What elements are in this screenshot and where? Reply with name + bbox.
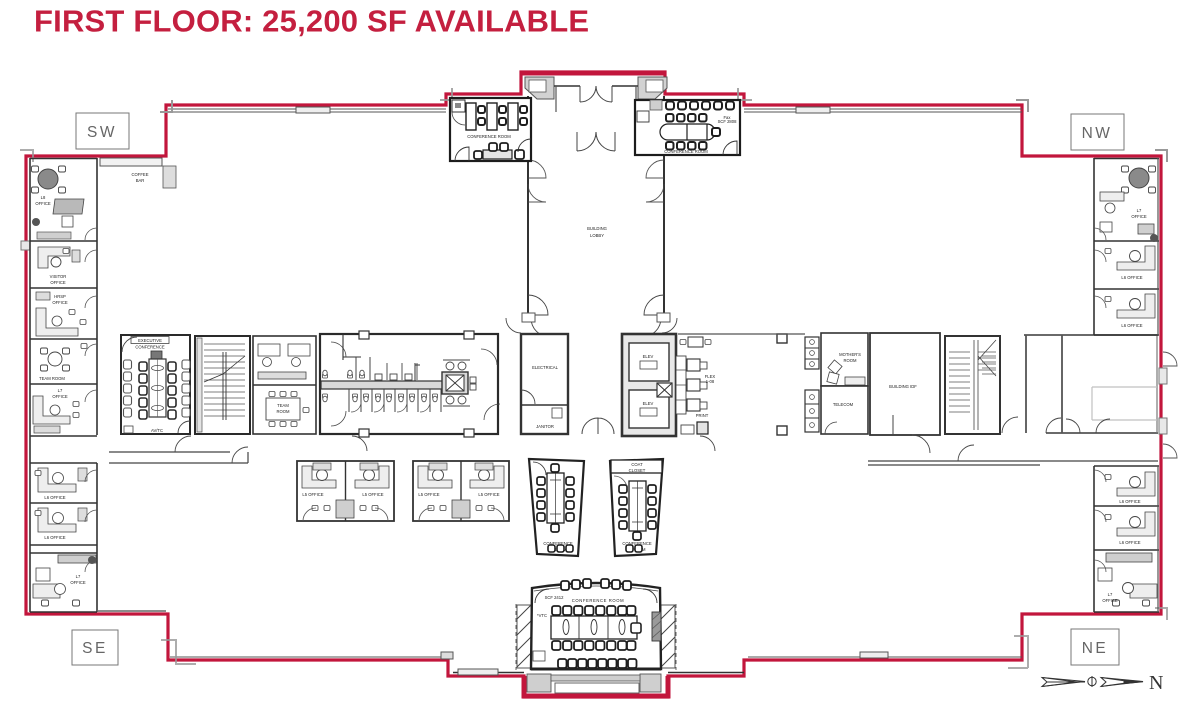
- svg-text:L5 OFFICE: L5 OFFICE: [362, 492, 383, 497]
- svg-text:CLOSET: CLOSET: [629, 468, 646, 473]
- svg-text:L6 OFFICE: L6 OFFICE: [1119, 499, 1140, 504]
- svg-text:MOTHER'S: MOTHER'S: [839, 352, 861, 357]
- svg-text:L7: L7: [76, 574, 81, 579]
- svg-text:L5 OFFICE: L5 OFFICE: [478, 492, 499, 497]
- svg-text:BUILDING IDF: BUILDING IDF: [889, 384, 917, 389]
- svg-text:OFFICE: OFFICE: [1102, 598, 1118, 603]
- svg-text:L7: L7: [58, 388, 63, 393]
- svg-text:CONFERENCE ROOM: CONFERENCE ROOM: [572, 598, 625, 603]
- svg-text:TEAM ROOM: TEAM ROOM: [39, 376, 65, 381]
- svg-text:CONFERENCE ROOM: CONFERENCE ROOM: [467, 134, 511, 139]
- svg-text:NW: NW: [1082, 125, 1113, 142]
- svg-text:COAT: COAT: [631, 462, 643, 467]
- svg-text:SE: SE: [82, 640, 108, 657]
- svg-text:COFFEE: COFFEE: [132, 172, 149, 177]
- svg-text:BAR: BAR: [136, 178, 145, 183]
- svg-text:CONFERENCE ROOM: CONFERENCE ROOM: [664, 149, 708, 154]
- svg-text:OFFICE: OFFICE: [52, 300, 68, 305]
- svg-text:1-08: 1-08: [706, 379, 715, 384]
- svg-text:L7: L7: [1137, 208, 1142, 213]
- svg-text:TEAM: TEAM: [277, 403, 289, 408]
- svg-text:NE: NE: [1082, 640, 1109, 657]
- svg-text:OFFICE: OFFICE: [70, 580, 86, 585]
- svg-text:L6 OFFICE: L6 OFFICE: [1119, 540, 1140, 545]
- svg-text:L6 OFFICE: L6 OFFICE: [1121, 323, 1142, 328]
- svg-text:ELECTRICAL: ELECTRICAL: [532, 365, 559, 370]
- svg-text:AV/TC: AV/TC: [151, 428, 163, 433]
- svg-text:OFFICE: OFFICE: [35, 201, 51, 206]
- svg-text:L6 OFFICE: L6 OFFICE: [1121, 275, 1142, 280]
- svg-text:OFFICE: OFFICE: [52, 394, 68, 399]
- svg-text:ROOM: ROOM: [843, 358, 857, 363]
- svg-text:SW: SW: [87, 124, 117, 141]
- svg-text:OFFICE: OFFICE: [50, 280, 66, 285]
- svg-text:LOBBY: LOBBY: [590, 233, 604, 238]
- svg-text:CONFERENCE: CONFERENCE: [135, 345, 165, 350]
- svg-text:SCF 2808: SCF 2808: [718, 119, 738, 124]
- svg-text:L6 OFFICE: L6 OFFICE: [44, 495, 65, 500]
- svg-text:ELEV: ELEV: [643, 401, 654, 406]
- svg-text:FIRST FLOOR: 25,200 SF AVAILAB: FIRST FLOOR: 25,200 SF AVAILABLE: [34, 4, 589, 39]
- svg-text:VISITOR: VISITOR: [50, 274, 67, 279]
- svg-text:L5 OFFICE: L5 OFFICE: [302, 492, 323, 497]
- svg-text:L7: L7: [1108, 592, 1113, 597]
- svg-text:JANITOR: JANITOR: [536, 424, 554, 429]
- svg-text:L8: L8: [41, 195, 46, 200]
- svg-text:L6 OFFICE: L6 OFFICE: [44, 535, 65, 540]
- svg-text:L5 OFFICE: L5 OFFICE: [418, 492, 439, 497]
- svg-text:SCF 2412: SCF 2412: [545, 595, 565, 600]
- svg-text:TELECOM: TELECOM: [833, 402, 854, 407]
- svg-text:*VTC: *VTC: [537, 613, 547, 618]
- svg-text:OFFICE: OFFICE: [1131, 214, 1147, 219]
- svg-text:ELEV: ELEV: [643, 354, 654, 359]
- svg-text:EXECUTIVE: EXECUTIVE: [138, 338, 162, 343]
- svg-text:PRINT: PRINT: [696, 413, 709, 418]
- svg-text:BUILDING: BUILDING: [587, 226, 607, 231]
- svg-text:HRSP: HRSP: [54, 294, 66, 299]
- svg-text:ROOM: ROOM: [276, 409, 290, 414]
- svg-text:N: N: [1149, 672, 1163, 694]
